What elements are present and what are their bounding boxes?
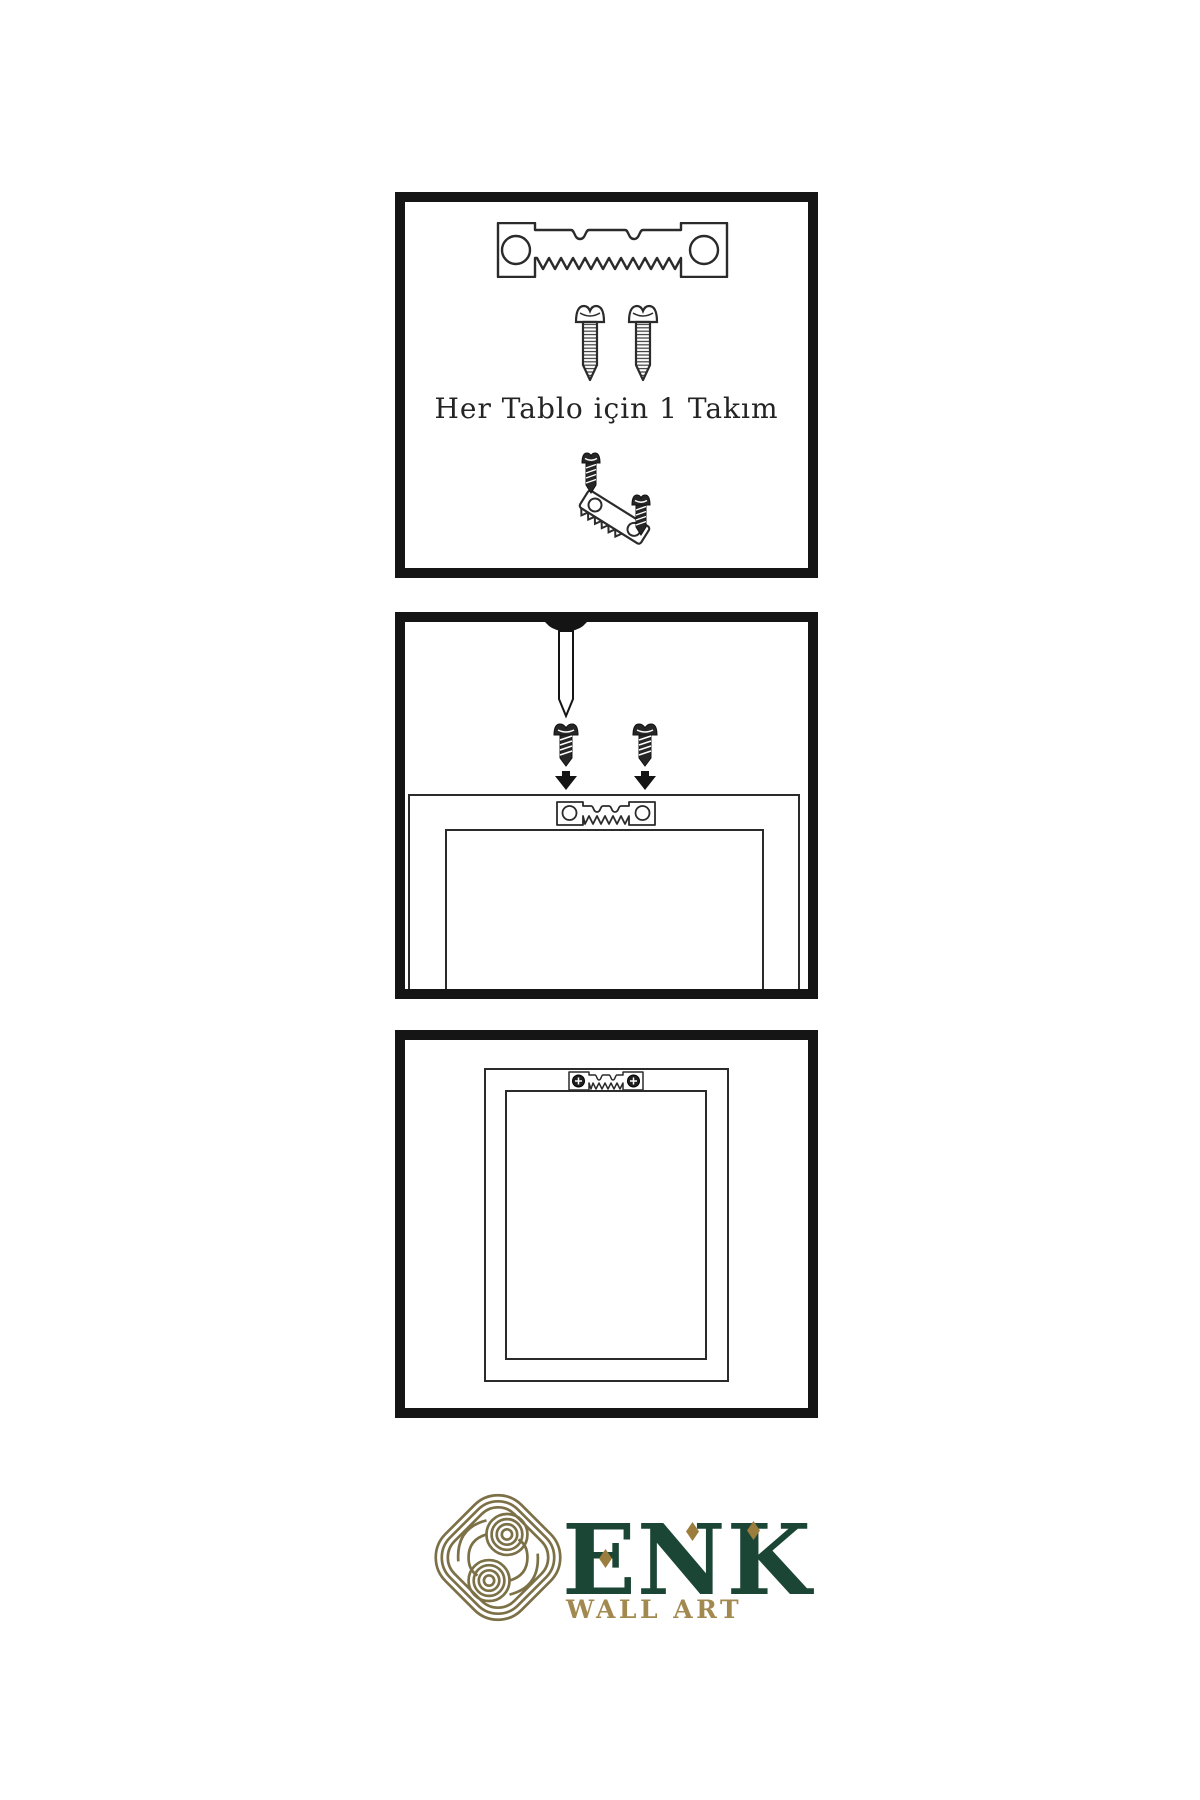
screw-head-icon bbox=[573, 1075, 585, 1087]
screw-into-hanger-icon bbox=[560, 447, 670, 547]
nail-icon bbox=[543, 621, 589, 719]
mounted-sawtooth-hanger-icon bbox=[567, 1071, 645, 1092]
panel-mounting-steps bbox=[395, 612, 818, 999]
brand-subtitle: WALL ART bbox=[566, 1597, 742, 1623]
screw-head-icon bbox=[628, 1075, 640, 1087]
screw-down-arrow-icon bbox=[630, 722, 660, 792]
screw-down-arrow-icon bbox=[551, 722, 581, 792]
screw-icon bbox=[625, 303, 661, 383]
frame-back-inner-edge bbox=[445, 829, 764, 999]
sawtooth-hanger-icon bbox=[495, 222, 730, 278]
knot-logo-icon bbox=[434, 1487, 562, 1628]
screw-icon bbox=[572, 303, 608, 383]
screw-icon bbox=[582, 453, 600, 493]
frame-back-inner-edge bbox=[505, 1090, 707, 1360]
panel-hardware-kit: Her Tablo için 1 Takım bbox=[395, 192, 818, 578]
panel-hanging-result bbox=[395, 1030, 818, 1418]
sawtooth-hanger-icon bbox=[555, 801, 657, 827]
instruction-sheet: Her Tablo için 1 Takım bbox=[0, 0, 1200, 1800]
kit-caption: Her Tablo için 1 Takım bbox=[405, 392, 808, 426]
arrow-down-icon bbox=[634, 771, 656, 790]
arrow-down-icon bbox=[555, 771, 577, 790]
